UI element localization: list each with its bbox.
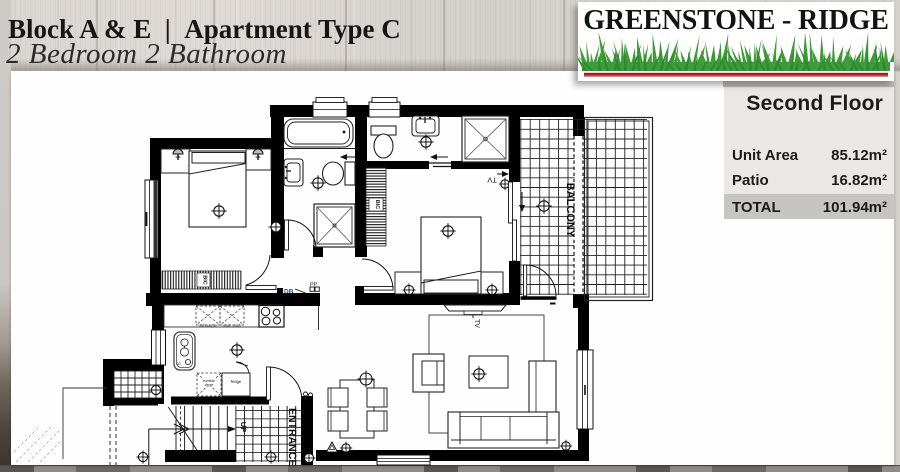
svg-text:ENTRANCE: ENTRANCE <box>286 408 298 466</box>
svg-text:BIC: BIC <box>374 200 380 210</box>
svg-text:DB: DB <box>284 289 294 296</box>
svg-text:BALCONY: BALCONY <box>564 183 576 238</box>
svg-text:fridge: fridge <box>231 379 242 384</box>
svg-text:UP: UP <box>239 422 248 432</box>
svg-text:PP: PP <box>310 282 318 288</box>
svg-text:TV: TV <box>487 176 497 185</box>
svg-text:dishwasher: dishwasher <box>199 324 218 328</box>
svg-text:BIC: BIC <box>202 275 208 285</box>
svg-text:TV: TV <box>473 319 480 328</box>
svg-text:wash mach: wash mach <box>223 324 241 328</box>
svg-text:dryer: dryer <box>205 383 214 387</box>
